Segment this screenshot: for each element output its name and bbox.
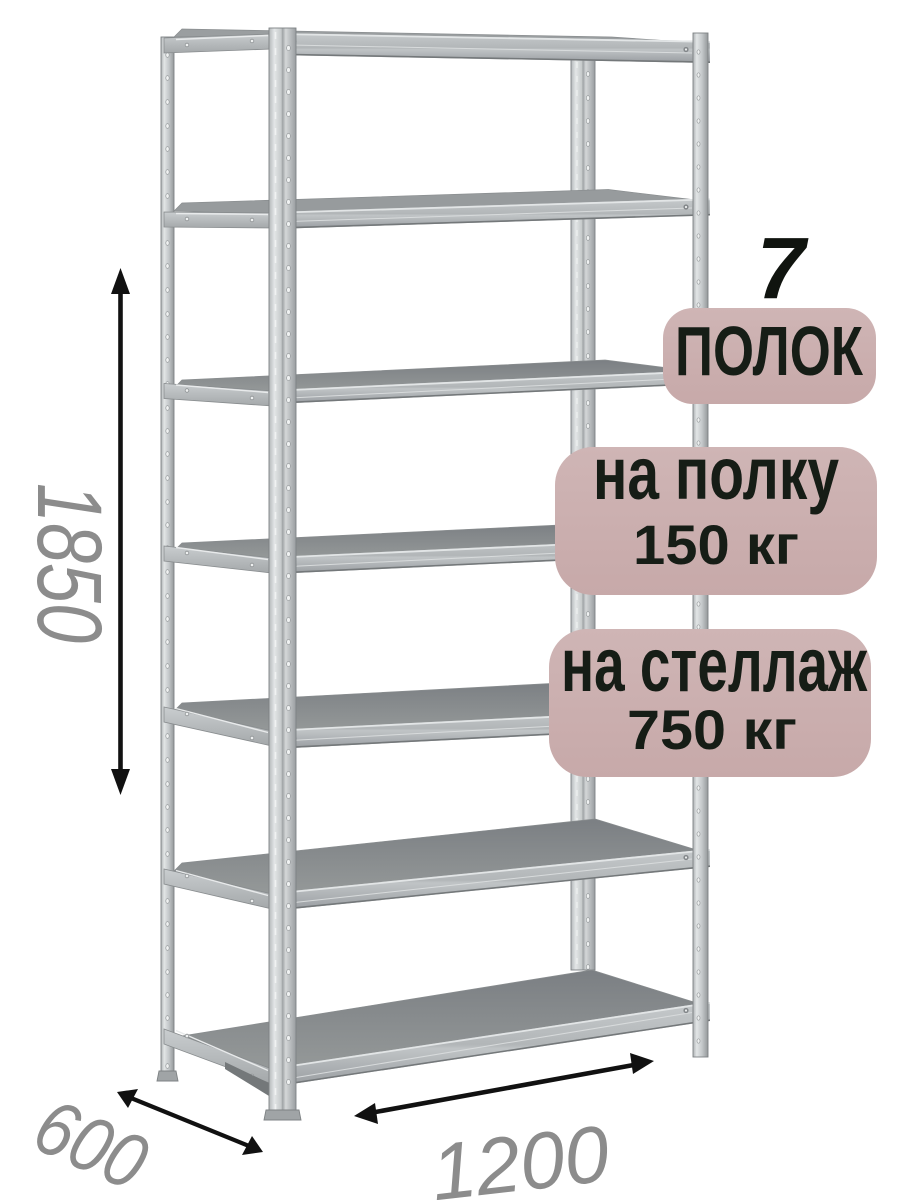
svg-text:150 кг: 150 кг — [633, 513, 799, 576]
svg-text:750 кг: 750 кг — [627, 698, 797, 761]
svg-text:1850: 1850 — [18, 483, 120, 643]
svg-text:на полку: на полку — [593, 432, 839, 515]
svg-text:на стеллаж: на стеллаж — [561, 623, 868, 708]
svg-text:7: 7 — [757, 220, 809, 317]
svg-text:ПОЛОК: ПОЛОК — [675, 312, 863, 390]
